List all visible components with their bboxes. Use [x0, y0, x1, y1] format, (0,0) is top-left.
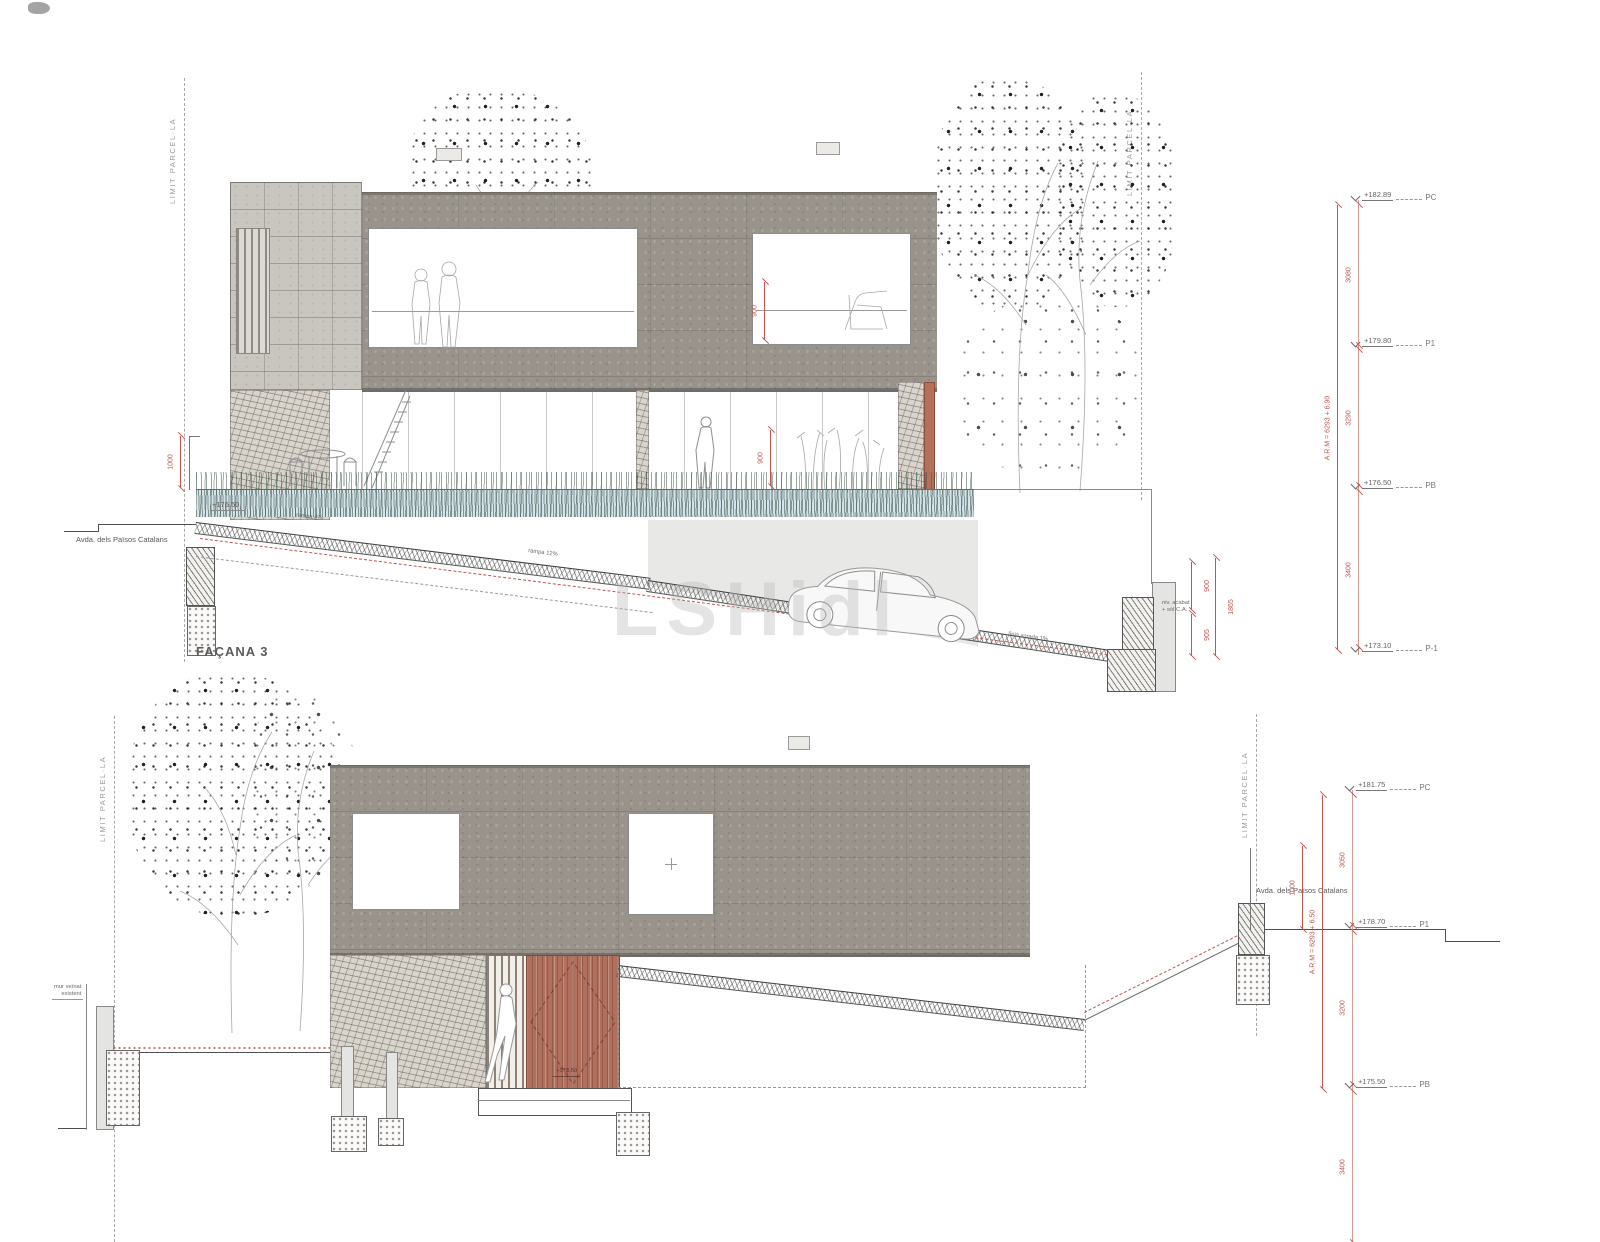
level-triangle-icon [1345, 782, 1355, 792]
lower-ground-line [58, 1128, 86, 1129]
level-marker-pc: +181.75 PC [1346, 780, 1430, 791]
dim-floor-3050: 3050 [1352, 795, 1353, 925]
retaining-wall-cut [1238, 903, 1265, 955]
street-kerb [1445, 929, 1446, 941]
level-marker-pb: +175.50 PB [1346, 1077, 1430, 1088]
slab-joint-line [478, 1100, 630, 1101]
level-dash [1390, 788, 1416, 790]
level-name: PC [1419, 783, 1430, 792]
window-left [352, 813, 460, 910]
crosshair-mark [671, 858, 672, 870]
street-line [1445, 941, 1500, 942]
garden-ground-line [112, 1052, 330, 1053]
footing-cut [378, 1118, 404, 1146]
window-right [628, 813, 714, 915]
parcel-limit-label-left: LIMIT PARCEL·LA [98, 722, 107, 842]
foundation-pier [341, 1046, 354, 1120]
footing-cut [331, 1116, 367, 1152]
footing-cut [616, 1112, 650, 1156]
terrain-dashed-line [1084, 933, 1242, 1013]
wall-footing-cut [1236, 955, 1270, 1005]
person-walking-silhouette [482, 980, 532, 1090]
basement-dashed-outline [618, 965, 1086, 1088]
roof-vent [788, 736, 810, 750]
level-value: +178.70 [1356, 917, 1387, 928]
street-line [1240, 929, 1445, 930]
garden-ground-dots [112, 1046, 330, 1050]
level-dash [1390, 925, 1416, 927]
level-value: +181.75 [1356, 780, 1387, 791]
dim-floor-3200: 3200 [1352, 932, 1353, 1084]
level-marker-p1: +178.70 P1 [1346, 917, 1429, 928]
neighbour-boundary-line [86, 984, 87, 1130]
entry-slab [478, 1088, 632, 1116]
level-dash [1390, 1085, 1416, 1087]
wall-note: mur veïnat existent [52, 984, 83, 1000]
dim-overall-arm: A.R.M = 6293 + 6.50 [1322, 795, 1323, 1089]
wall-footing-cut [106, 1050, 140, 1126]
parcel-limit-line-left [114, 716, 115, 1242]
foundation-pier [386, 1052, 398, 1120]
dim-fence-1000: 1000 [1302, 846, 1303, 929]
terrain-slope-line [1084, 941, 1242, 1021]
level-name: P1 [1419, 920, 1429, 929]
level-name: PB [1419, 1080, 1430, 1089]
facade-rear-elevation: LIMIT PARCEL·LA LIMIT PARCEL·LA +178.50 [0, 0, 1600, 1242]
gate-level-label: +178.50 [553, 1068, 580, 1077]
dim-floor-3400: 3400 [1352, 1092, 1353, 1242]
parcel-limit-label-right: LIMIT PARCEL·LA [1240, 718, 1249, 838]
parcel-fence [1250, 848, 1251, 930]
drawing-canvas: LSHidl LIMIT PARCEL·LA LIMIT PARCEL·LA [0, 0, 1600, 1242]
level-value: +175.50 [1356, 1077, 1387, 1088]
entry-gate: +178.50 [526, 955, 620, 1090]
